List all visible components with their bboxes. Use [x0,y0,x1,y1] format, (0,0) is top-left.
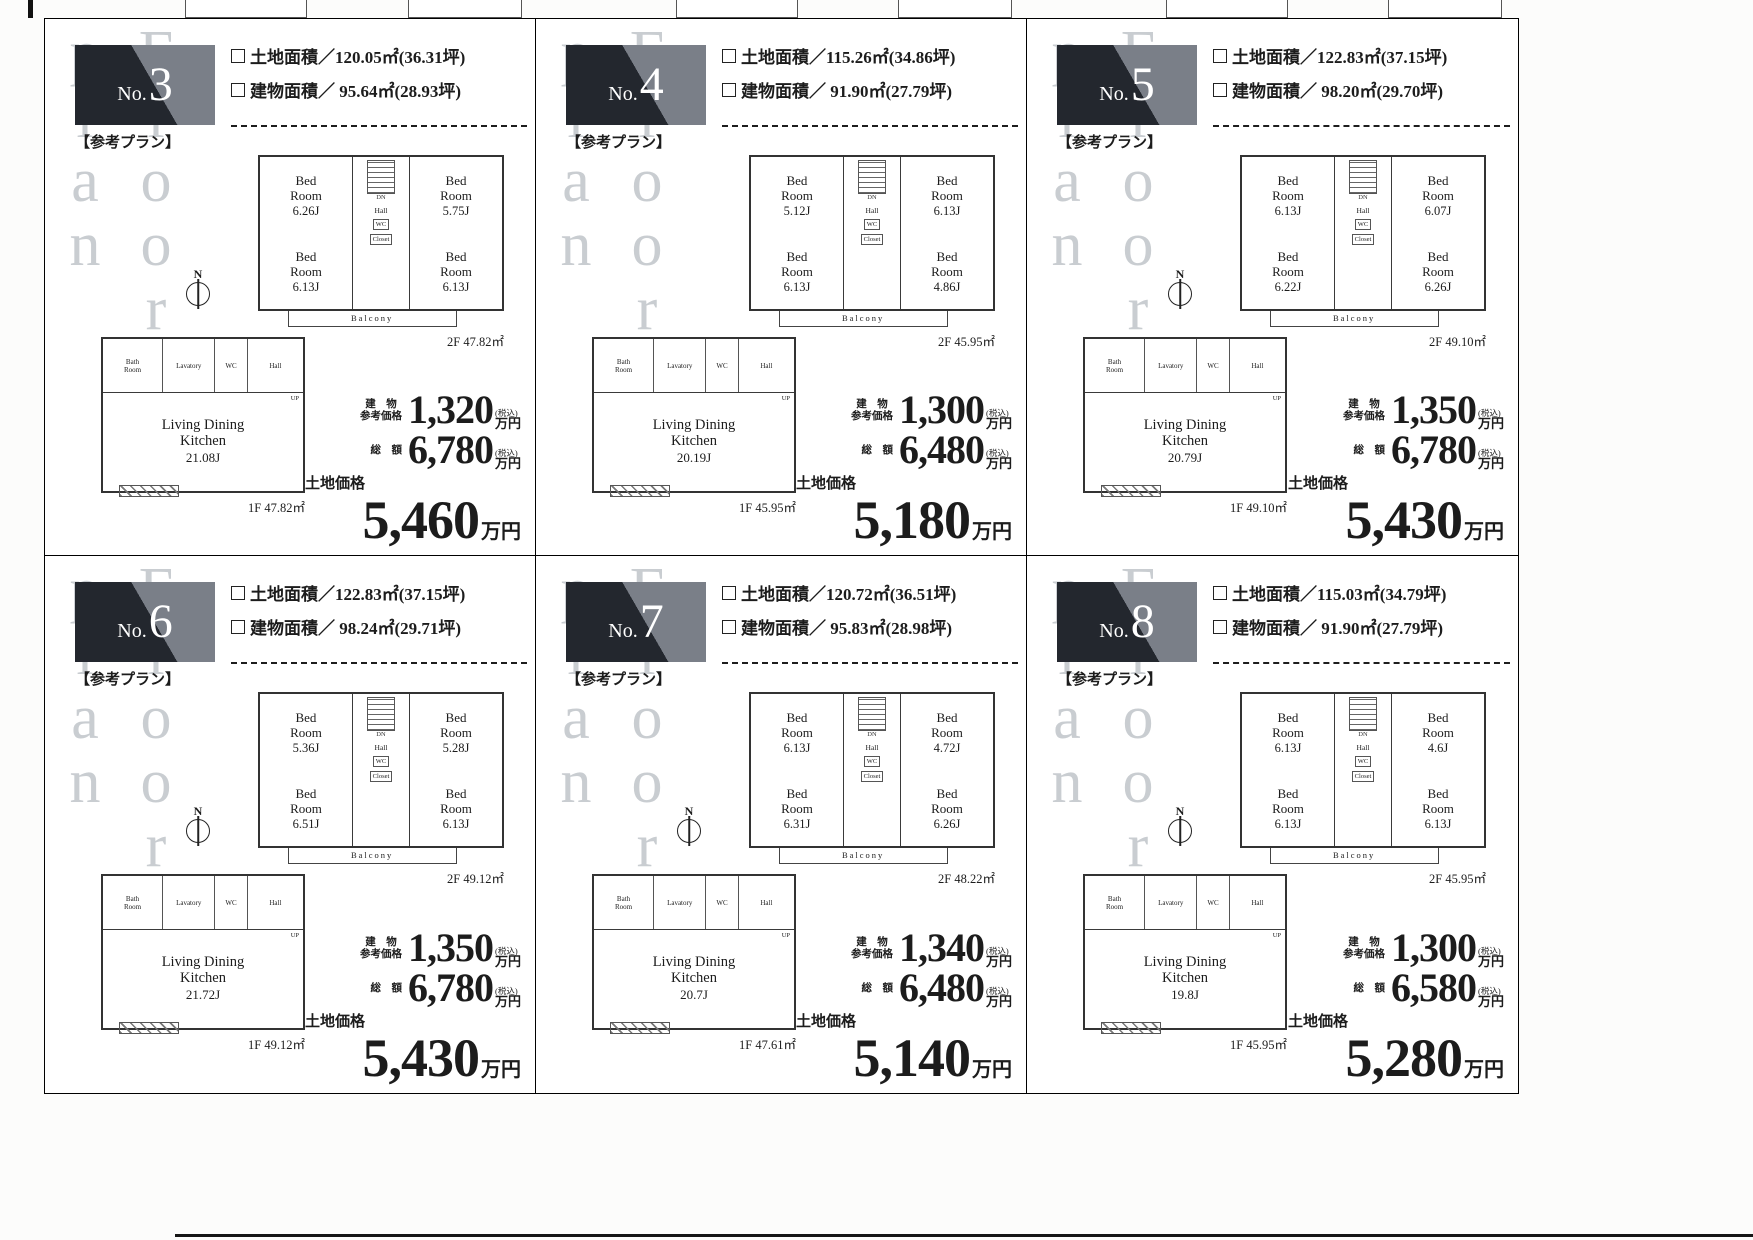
checkbox-icon [722,83,736,97]
stair-hall-core: DN Hall WC Closet [352,694,410,846]
ldk-label: Living Dining Kitchen [157,954,249,986]
balcony-label: Balcony [288,848,457,864]
hall-label: Hall [1251,899,1263,907]
lavatory-label: Lavatory [176,899,201,907]
lavatory-label: Lavatory [667,362,692,370]
lavatory-label: Lavatory [1158,362,1183,370]
compass-circle-icon [677,819,701,843]
closet-label: Closet [1352,771,1375,782]
bedroom-size: 6.26J [293,204,320,219]
cut-off-plan-fragment [408,0,522,18]
closet-label: Closet [370,234,393,245]
price-block: 建 物 参考価格 1,300 (税込) 万円 総 額 6,480 (税込) 万円… [782,390,1012,547]
unit-label: 万円 [986,457,1012,470]
bedroom-name: Bed Room [774,250,820,279]
second-floor-rooms: Bed Room 6.26J Bed Room 5.75J Bed Room 6… [258,155,504,311]
floor-plan-panel: Floor plan No. 5 土地面積／122.83㎡(37.15坪) 建物… [1027,19,1518,556]
bedroom-name: Bed Room [924,250,970,279]
bedroom-name: Bed Room [924,787,970,816]
reference-plan-note: 【参考プラン】 [75,131,180,152]
first-floor-plan: Bath Room Lavatory WC Hall UP Living Din… [592,874,796,1053]
bath-room: Bath Room [594,339,654,392]
building-price-label: 建 物 参考価格 [360,398,402,422]
price-block: 建 物 参考価格 1,300 (税込) 万円 総 額 6,580 (税込) 万円… [1274,928,1504,1085]
total-price-suffix: (税込) 万円 [986,987,1012,1009]
cut-off-plan-fragment [898,0,1012,18]
compass-needle-icon [197,279,199,309]
floor-plan-panel: Floor plan No. 6 土地面積／122.83㎡(37.15坪) 建物… [45,556,536,1093]
land-area-line: 土地面積／120.72㎡(36.51坪) [722,580,1012,605]
ldk-size: 20.19J [677,450,711,466]
unit-label: 万円 [972,1053,1012,1082]
wc: WC [1197,876,1230,929]
wc-label: WC [1207,362,1218,370]
bedroom: Bed Room 6.13J [1391,773,1484,846]
bedroom: Bed Room 6.13J [1242,694,1335,774]
hall-label: Hall [1357,206,1370,215]
wc-label: WC [373,756,389,767]
compass: N [676,804,702,843]
land-price-value: 5,140 [854,1031,971,1085]
lot-number-prefix: No. [117,620,146,643]
bedroom-name: Bed Room [433,711,479,740]
dashed-divider [231,125,527,127]
total-price-suffix: (税込) 万円 [1478,987,1504,1009]
second-floor-plan: Bed Room 6.13J Bed Room 4.72J Bed Room 6… [749,692,995,887]
total-price-suffix: (税込) 万円 [986,449,1012,471]
compass: N [185,267,211,306]
balcony-label: Balcony [779,848,948,864]
second-floor-rooms: Bed Room 6.13J Bed Room 6.07J Bed Room 6… [1240,155,1486,311]
compass: N [1167,804,1193,843]
total-price-row: 総 額 6,480 (税込) 万円 [782,968,1012,1008]
bedroom-name: Bed Room [774,711,820,740]
wc-label: WC [864,219,880,230]
ldk-size: 19.8J [1171,987,1199,1003]
building-price-suffix: (税込) 万円 [986,409,1012,431]
closet-label: Closet [861,234,884,245]
staircase-icon [367,160,395,194]
bedroom-name: Bed Room [774,787,820,816]
building-price-row: 建 物 参考価格 1,300 (税込) 万円 [782,390,1012,430]
bedroom-name: Bed Room [1265,174,1311,203]
bath-room-label: Bath Room [611,895,637,911]
lot-number: 7 [640,582,664,662]
wc-label: WC [716,362,727,370]
building-area-text: 建物面積／ 91.90㎡(27.79坪) [741,77,952,102]
scan-bottom-line [175,1234,1753,1237]
lavatory-label: Lavatory [176,362,201,370]
hall-label: Hall [375,206,388,215]
first-floor-plan: Bath Room Lavatory WC Hall UP Living Din… [101,337,305,516]
second-floor-rooms: Bed Room 5.36J Bed Room 5.28J Bed Room 6… [258,692,504,848]
building-price-label: 建 物 参考価格 [360,936,402,960]
living-dining-kitchen: Living Dining Kitchen 20.79J [1085,392,1285,491]
balcony-label: Balcony [779,311,948,327]
ldk-size: 21.08J [186,450,220,466]
bedroom-size: 6.26J [1425,280,1452,295]
bedroom: Bed Room 5.75J [409,157,502,237]
bedroom-size: 6.13J [784,741,811,756]
building-area-line: 建物面積／ 91.90㎡(27.79坪) [1213,614,1503,639]
lot-number-badge: No. 6 [75,582,215,662]
lot-number-prefix: No. [117,83,146,106]
wet-area-band: Bath Room Lavatory WC Hall [594,339,794,393]
land-area-text: 土地面積／122.83㎡(37.15坪) [250,580,465,605]
bedroom-size: 6.13J [1275,204,1302,219]
land-price-value: 5,460 [363,493,480,547]
compass-needle-icon [688,816,690,846]
living-dining-kitchen: Living Dining Kitchen 20.19J [594,392,794,491]
building-price-row: 建 物 参考価格 1,350 (税込) 万円 [1274,390,1504,430]
staircase-icon [367,697,395,731]
unit-label: 万円 [986,417,1012,430]
bedroom: Bed Room 6.22J [1242,236,1335,309]
unit-label: 万円 [986,955,1012,968]
unit-label: 万円 [495,955,521,968]
second-floor-plan: Bed Room 5.36J Bed Room 5.28J Bed Room 6… [258,692,504,887]
building-price-suffix: (税込) 万円 [1478,947,1504,969]
bedroom-size: 6.13J [784,280,811,295]
bedroom: Bed Room 6.13J [409,773,502,846]
lot-number-prefix: No. [1099,83,1128,106]
ldk-label: Living Dining Kitchen [1139,417,1231,449]
bedroom: Bed Room 6.13J [900,157,993,237]
total-price-row: 総 額 6,780 (税込) 万円 [291,968,521,1008]
wc: WC [706,339,739,392]
dashed-divider [231,662,527,664]
building-price-value: 1,320 [408,390,493,430]
first-floor-plan: Bath Room Lavatory WC Hall UP Living Din… [1083,337,1287,516]
hall: Hall [1230,339,1285,392]
cut-off-plan-fragment [1166,0,1288,18]
first-floor-rooms: Bath Room Lavatory WC Hall UP Living Din… [592,874,796,1030]
total-price-label: 総 額 [861,982,893,994]
stair-hall-core: DN Hall WC Closet [843,157,901,309]
wc-label: WC [1355,219,1371,230]
hall-label: Hall [866,743,879,752]
area-summary: 土地面積／120.72㎡(36.51坪) 建物面積／ 95.83㎡(28.98坪… [722,580,1012,648]
checkbox-icon [231,620,245,634]
second-floor-plan: Bed Room 6.13J Bed Room 6.07J Bed Room 6… [1240,155,1486,350]
unit-label: 万円 [972,515,1012,544]
bedroom: Bed Room 6.31J [751,773,844,846]
bedroom-name: Bed Room [1265,250,1311,279]
land-price-value: 5,430 [1346,493,1463,547]
bedroom-size: 5.28J [443,741,470,756]
bedroom-name: Bed Room [433,787,479,816]
land-price-block: 土地価格 5,280 万円 [1274,1010,1504,1085]
unit-label: 万円 [481,1053,521,1082]
dashed-divider [722,125,1018,127]
stair-hall-core: DN Hall WC Closet [352,157,410,309]
land-price-value: 5,280 [1346,1031,1463,1085]
land-price-value: 5,430 [363,1031,480,1085]
lot-number-badge: No. 3 [75,45,215,125]
bedroom-size: 6.51J [293,817,320,832]
building-price-label: 建 物 参考価格 [851,398,893,422]
bedroom-name: Bed Room [433,174,479,203]
building-price-label: 建 物 参考価格 [1343,936,1385,960]
living-dining-kitchen: Living Dining Kitchen 21.08J [103,392,303,491]
lavatory: Lavatory [1145,876,1197,929]
reference-plan-note: 【参考プラン】 [1057,131,1162,152]
unit-label: 万円 [1464,515,1504,544]
price-block: 建 物 参考価格 1,350 (税込) 万円 総 額 6,780 (税込) 万円… [1274,390,1504,547]
price-block: 建 物 参考価格 1,340 (税込) 万円 総 額 6,480 (税込) 万円… [782,928,1012,1085]
compass-needle-icon [1179,816,1181,846]
building-price-value: 1,350 [1391,390,1476,430]
down-label: DN [867,194,876,202]
checkbox-icon [722,49,736,63]
bedroom-name: Bed Room [283,174,329,203]
first-floor-rooms: Bath Room Lavatory WC Hall UP Living Din… [1083,337,1287,493]
reference-plan-note: 【参考プラン】 [75,668,180,689]
building-price-label: 建 物 参考価格 [1343,398,1385,422]
closet-label: Closet [861,771,884,782]
living-dining-kitchen: Living Dining Kitchen 21.72J [103,929,303,1028]
hall-label: Hall [269,362,281,370]
porch-hatch [1101,485,1161,497]
living-dining-kitchen: Living Dining Kitchen 20.7J [594,929,794,1028]
bedroom-name: Bed Room [283,711,329,740]
unit-label: 万円 [986,995,1012,1008]
total-price-row: 総 額 6,780 (税込) 万円 [1274,430,1504,470]
lot-number-badge: No. 7 [566,582,706,662]
building-area-line: 建物面積／ 95.83㎡(28.98坪) [722,614,1012,639]
compass-needle-icon [197,816,199,846]
lavatory-label: Lavatory [1158,899,1183,907]
bedroom: Bed Room 5.28J [409,694,502,774]
porch-hatch [119,1022,179,1034]
first-floor-area: 1F 47.82㎡ [101,497,305,516]
wet-area-band: Bath Room Lavatory WC Hall [1085,339,1285,393]
building-area-text: 建物面積／ 91.90㎡(27.79坪) [1232,614,1443,639]
down-label: DN [376,194,385,202]
scan-edge-mark [28,0,33,18]
unit-label: 万円 [1478,995,1504,1008]
bedroom-name: Bed Room [1265,711,1311,740]
checkbox-icon [231,49,245,63]
area-summary: 土地面積／120.05㎡(36.31坪) 建物面積／ 95.64㎡(28.93坪… [231,43,521,111]
checkbox-icon [1213,586,1227,600]
first-floor-area: 1F 49.10㎡ [1083,497,1287,516]
land-area-line: 土地面積／120.05㎡(36.31坪) [231,43,521,68]
floor-plan-panel: Floor plan No. 3 土地面積／120.05㎡(36.31坪) 建物… [45,19,536,556]
bedroom-size: 6.31J [784,817,811,832]
lot-number-badge: No. 5 [1057,45,1197,125]
bath-room: Bath Room [103,876,163,929]
lavatory-label: Lavatory [667,899,692,907]
bedroom-size: 6.13J [1275,741,1302,756]
first-floor-plan: Bath Room Lavatory WC Hall UP Living Din… [592,337,796,516]
total-price-value: 6,780 [408,968,493,1008]
bedroom: Bed Room 6.13J [751,694,844,774]
building-price-suffix: (税込) 万円 [986,947,1012,969]
bedroom: Bed Room 6.13J [751,236,844,309]
bath-room-label: Bath Room [120,358,146,374]
area-summary: 土地面積／122.83㎡(37.15坪) 建物面積／ 98.20㎡(29.70坪… [1213,43,1503,111]
building-area-line: 建物面積／ 98.20㎡(29.70坪) [1213,77,1503,102]
wet-area-band: Bath Room Lavatory WC Hall [103,876,303,930]
bath-room: Bath Room [594,876,654,929]
bedroom: Bed Room 4.86J [900,236,993,309]
lot-number-prefix: No. [1099,620,1128,643]
bedroom-size: 6.13J [293,280,320,295]
lot-number: 6 [149,582,173,662]
first-floor-area: 1F 45.95㎡ [1083,1034,1287,1053]
bedroom: Bed Room 5.12J [751,157,844,237]
bedroom-name: Bed Room [1415,711,1461,740]
unit-label: 万円 [1478,955,1504,968]
wc: WC [215,339,248,392]
total-price-suffix: (税込) 万円 [1478,449,1504,471]
floor-plan-panel: Floor plan No. 4 土地面積／115.26㎡(34.86坪) 建物… [536,19,1027,556]
down-label: DN [867,731,876,739]
unit-label: 万円 [1478,457,1504,470]
wc-label: WC [373,219,389,230]
lot-number: 4 [640,45,664,125]
land-price-value: 5,180 [854,493,971,547]
staircase-icon [858,160,886,194]
closet-label: Closet [1352,234,1375,245]
total-price-suffix: (税込) 万円 [495,449,521,471]
land-area-text: 土地面積／120.05㎡(36.31坪) [250,43,465,68]
balcony-label: Balcony [1270,848,1439,864]
land-area-text: 土地面積／115.26㎡(34.86坪) [741,43,955,68]
ldk-label: Living Dining Kitchen [648,417,740,449]
cut-off-plan-fragment [1388,0,1502,18]
building-area-text: 建物面積／ 98.24㎡(29.71坪) [250,614,461,639]
second-floor-rooms: Bed Room 6.13J Bed Room 4.72J Bed Room 6… [749,692,995,848]
total-price-label: 総 額 [1353,982,1385,994]
hall: Hall [1230,876,1285,929]
bedroom-size: 6.13J [1275,817,1302,832]
down-label: DN [1358,194,1367,202]
bedroom: Bed Room 4.72J [900,694,993,774]
wc-label: WC [1207,899,1218,907]
land-price-block: 土地価格 5,180 万円 [782,472,1012,547]
bath-room-label: Bath Room [1102,895,1128,911]
balcony-label: Balcony [1270,311,1439,327]
building-area-line: 建物面積／ 91.90㎡(27.79坪) [722,77,1012,102]
hall: Hall [739,339,794,392]
checkbox-icon [231,83,245,97]
compass: N [1167,267,1193,306]
bedroom-size: 6.07J [1425,204,1452,219]
building-area-text: 建物面積／ 95.64㎡(28.93坪) [250,77,461,102]
land-area-text: 土地面積／115.03㎡(34.79坪) [1232,580,1446,605]
down-label: DN [376,731,385,739]
bedroom-name: Bed Room [774,174,820,203]
lavatory: Lavatory [654,339,706,392]
total-price-value: 6,780 [1391,430,1476,470]
checkbox-icon [231,586,245,600]
second-floor-plan: Bed Room 5.12J Bed Room 6.13J Bed Room 6… [749,155,995,350]
reference-plan-note: 【参考プラン】 [1057,668,1162,689]
bedroom-size: 4.72J [934,741,961,756]
floor-plan-panel: Floor plan No. 8 土地面積／115.03㎡(34.79坪) 建物… [1027,556,1518,1093]
bath-room: Bath Room [103,339,163,392]
bedroom-name: Bed Room [1415,250,1461,279]
second-floor-rooms: Bed Room 5.12J Bed Room 6.13J Bed Room 6… [749,155,995,311]
area-summary: 土地面積／115.26㎡(34.86坪) 建物面積／ 91.90㎡(27.79坪… [722,43,1012,111]
total-price-value: 6,480 [899,430,984,470]
building-price-suffix: (税込) 万円 [1478,409,1504,431]
total-price-value: 6,580 [1391,968,1476,1008]
ldk-label: Living Dining Kitchen [157,417,249,449]
closet-label: Closet [370,771,393,782]
building-price-value: 1,300 [1391,928,1476,968]
reference-plan-note: 【参考プラン】 [566,668,671,689]
land-area-line: 土地面積／115.03㎡(34.79坪) [1213,580,1503,605]
first-floor-area: 1F 47.61㎡ [592,1034,796,1053]
porch-hatch [1101,1022,1161,1034]
bedroom: Bed Room 6.51J [260,773,353,846]
price-block: 建 物 参考価格 1,320 (税込) 万円 総 額 6,780 (税込) 万円… [291,390,521,547]
bedroom-size: 6.13J [1425,817,1452,832]
wet-area-band: Bath Room Lavatory WC Hall [1085,876,1285,930]
wc-label: WC [864,756,880,767]
first-floor-area: 1F 45.95㎡ [592,497,796,516]
wc: WC [1197,339,1230,392]
dashed-divider [1213,662,1510,664]
stair-hall-core: DN Hall WC Closet [1334,157,1392,309]
staircase-icon [1349,697,1377,731]
total-price-row: 総 額 6,480 (税込) 万円 [782,430,1012,470]
porch-hatch [610,485,670,497]
building-area-line: 建物面積／ 95.64㎡(28.93坪) [231,77,521,102]
bedroom: Bed Room 5.36J [260,694,353,774]
bath-room-label: Bath Room [120,895,146,911]
first-floor-rooms: Bath Room Lavatory WC Hall UP Living Din… [101,337,305,493]
staircase-icon [858,697,886,731]
bedroom: Bed Room 6.26J [1391,236,1484,309]
ldk-label: Living Dining Kitchen [648,954,740,986]
price-block: 建 物 参考価格 1,350 (税込) 万円 総 額 6,780 (税込) 万円… [291,928,521,1085]
checkbox-icon [1213,83,1227,97]
bedroom: Bed Room 6.26J [900,773,993,846]
bath-room-label: Bath Room [1102,358,1128,374]
bedroom-size: 6.13J [934,204,961,219]
first-floor-rooms: Bath Room Lavatory WC Hall UP Living Din… [592,337,796,493]
building-area-line: 建物面積／ 98.24㎡(29.71坪) [231,614,521,639]
unit-label: 万円 [495,417,521,430]
land-area-line: 土地面積／115.26㎡(34.86坪) [722,43,1012,68]
bedroom-size: 4.6J [1428,741,1449,756]
hall-label: Hall [269,899,281,907]
land-price-block: 土地価格 5,460 万円 [291,472,521,547]
building-area-text: 建物面積／ 98.20㎡(29.70坪) [1232,77,1443,102]
bedroom-size: 6.22J [1275,280,1302,295]
second-floor-plan: Bed Room 6.13J Bed Room 4.6J Bed Room 6.… [1240,692,1486,887]
floor-plan-panel: Floor plan No. 7 土地面積／120.72㎡(36.51坪) 建物… [536,556,1027,1093]
cut-off-plan-fragment [185,0,307,18]
bedroom: Bed Room 6.13J [260,236,353,309]
lot-number: 3 [149,45,173,125]
area-summary: 土地面積／115.03㎡(34.79坪) 建物面積／ 91.90㎡(27.79坪… [1213,580,1503,648]
wet-area-band: Bath Room Lavatory WC Hall [594,876,794,930]
compass-needle-icon [1179,279,1181,309]
hall: Hall [739,876,794,929]
hall-label: Hall [1251,362,1263,370]
reference-plan-note: 【参考プラン】 [566,131,671,152]
lavatory: Lavatory [1145,339,1197,392]
down-label: DN [1358,731,1367,739]
building-price-row: 建 物 参考価格 1,300 (税込) 万円 [1274,928,1504,968]
hall-label: Hall [760,362,772,370]
ldk-size: 21.72J [186,987,220,1003]
